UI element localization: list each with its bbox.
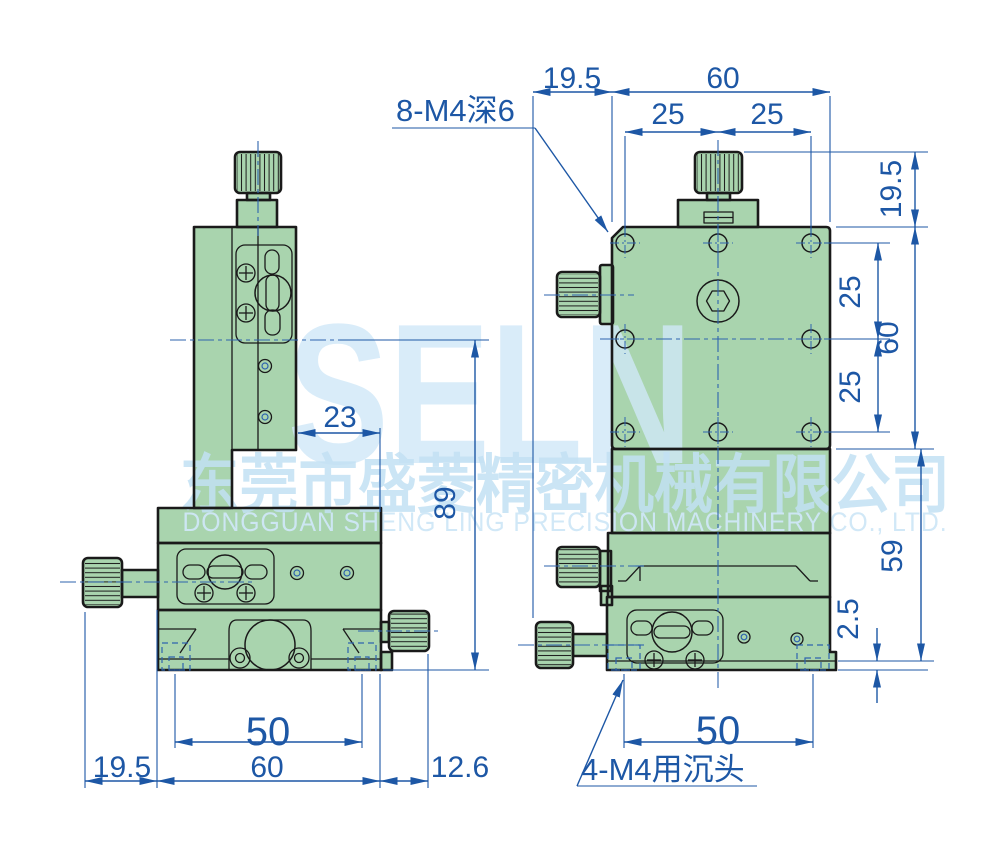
note-counterbore: 4-M4用沉头 bbox=[581, 752, 745, 787]
dim-hole-row-upper: 25 bbox=[834, 275, 867, 308]
dim-knob-offset: 19.5 bbox=[93, 751, 151, 784]
dim-base-lip: 2.5 bbox=[832, 598, 865, 640]
dim-top-offset: 19.5 bbox=[543, 62, 601, 95]
dim-base-width: 60 bbox=[250, 751, 283, 784]
note-tapped-holes: 8-M4深6 bbox=[396, 93, 515, 128]
watermark-company-en: DONGGUAN SHENG LING PRECISION MACHINERY … bbox=[183, 507, 948, 537]
technical-drawing: SELN 东莞市盛菱精密机械有限公司 DONGGUAN SHENG LING P… bbox=[0, 0, 1001, 853]
dim-front-hole-span: 50 bbox=[696, 709, 741, 753]
dim-lower-body-height: 59 bbox=[876, 539, 909, 572]
side-knob-knurl bbox=[559, 549, 598, 585]
drawing-page: SELN 东莞市盛菱精密机械有限公司 DONGGUAN SHENG LING P… bbox=[0, 0, 1001, 853]
dim-body-height: 60 bbox=[872, 321, 905, 354]
dim-top-width: 60 bbox=[706, 62, 739, 95]
dim-overall-height: 89 bbox=[429, 486, 462, 519]
dim-carriage-offset: 23 bbox=[323, 401, 356, 434]
dim-hole-row-lower: 25 bbox=[834, 370, 867, 403]
dim-knob-width: 12.6 bbox=[431, 751, 489, 784]
dim-top-hole-left: 25 bbox=[651, 98, 684, 131]
dim-knob-height: 19.5 bbox=[875, 160, 908, 218]
dim-side-hole-span: 50 bbox=[246, 710, 291, 754]
dim-top-hole-right: 25 bbox=[750, 98, 783, 131]
